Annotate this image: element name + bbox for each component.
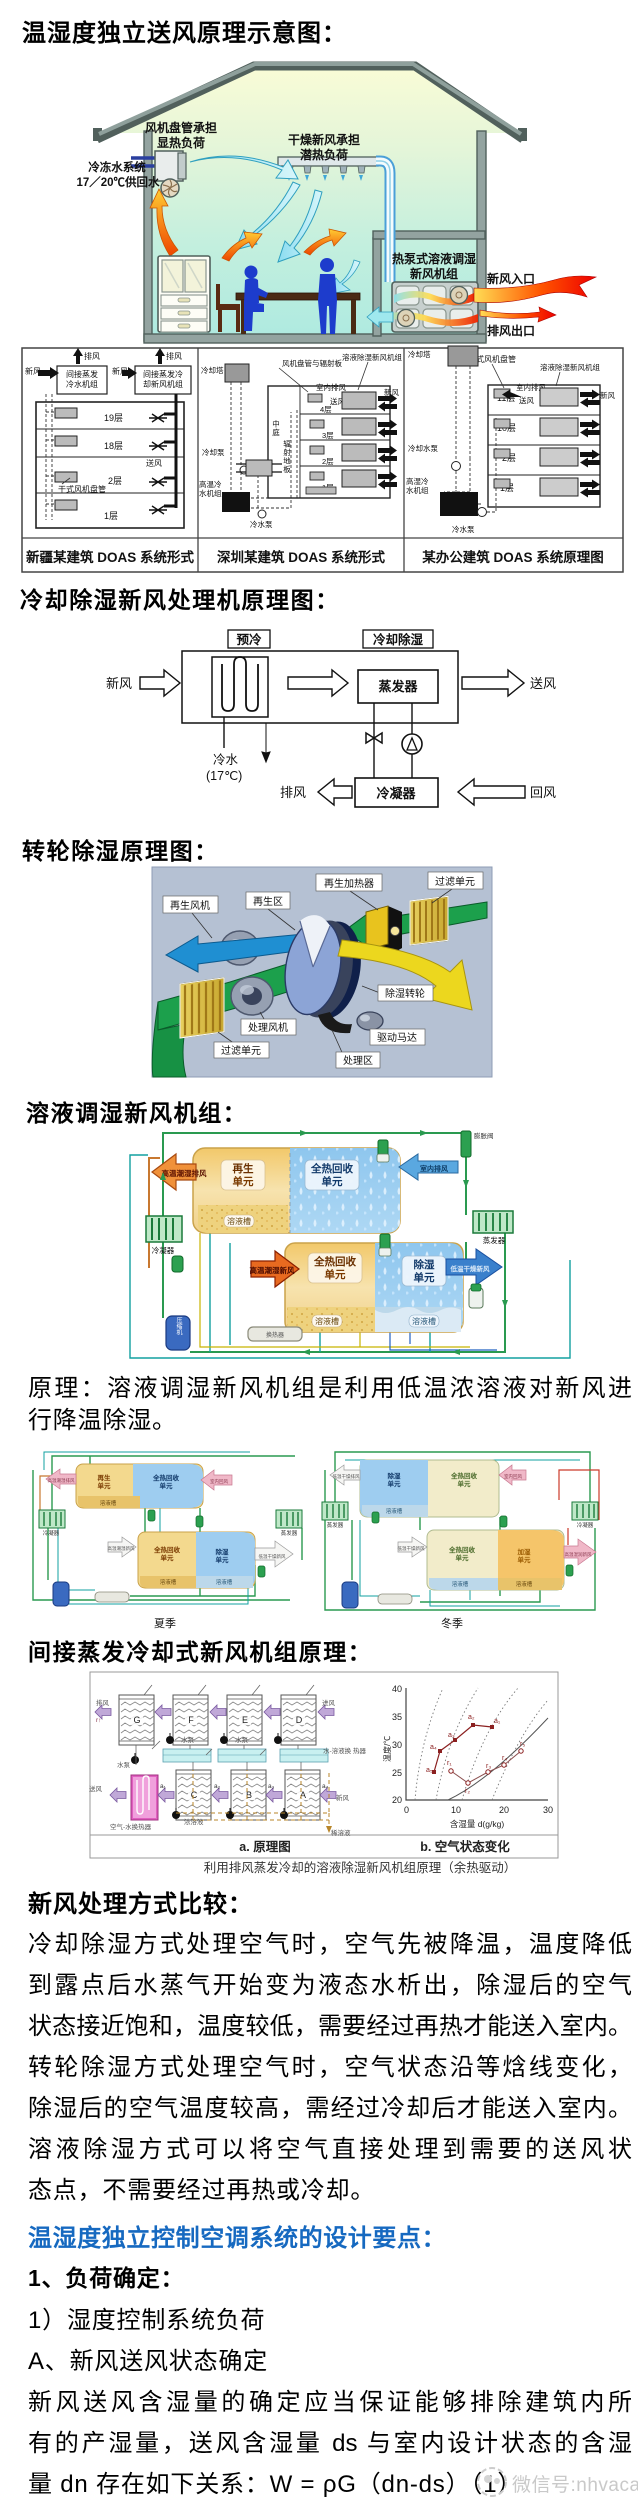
svg-text:冷水: 冷水 [213, 753, 239, 767]
svg-text:C: C [191, 1790, 198, 1800]
svg-text:单元: 单元 [414, 1271, 435, 1284]
svg-text:溶液槽: 溶液槽 [516, 1580, 533, 1588]
svg-text:10: 10 [451, 1805, 461, 1815]
svg-text:新风入口: 新风入口 [487, 271, 535, 286]
svg-text:高温潮湿新风: 高温潮湿新风 [250, 1265, 295, 1275]
svg-text:冷凝器: 冷凝器 [577, 1521, 594, 1529]
svg-text:a₃: a₃ [448, 1732, 455, 1739]
svg-text:进风: 进风 [322, 1699, 336, 1707]
svg-text:r₅: r₅ [520, 1741, 525, 1748]
svg-text:冷却塔: 冷却塔 [408, 349, 431, 359]
svg-text:水泵: 水泵 [235, 1735, 249, 1744]
svg-text:夏季: 夏季 [154, 1617, 176, 1630]
svg-text:溶液除湿新风机组: 溶液除湿新风机组 [342, 352, 402, 362]
svg-text:溶液槽: 溶液槽 [386, 1507, 403, 1515]
svg-text:除湿: 除湿 [388, 1471, 402, 1480]
svg-text:新风: 新风 [600, 390, 615, 400]
svg-text:处理区: 处理区 [343, 1055, 373, 1067]
svg-text:却新风机组: 却新风机组 [143, 379, 183, 389]
svg-text:除湿: 除湿 [216, 1547, 230, 1556]
svg-text:35: 35 [392, 1712, 402, 1722]
svg-text:室内排风: 室内排风 [420, 1164, 448, 1173]
svg-text:冷水泵: 冷水泵 [452, 524, 475, 534]
svg-text:排风: 排风 [96, 1698, 110, 1707]
svg-text:溶液除湿新风机组: 溶液除湿新风机组 [540, 362, 600, 372]
svg-text:高温潮湿排风: 高温潮湿排风 [162, 1168, 207, 1178]
svg-text:室内排风: 室内排风 [316, 382, 346, 392]
svg-text:a₄: a₄ [322, 1783, 329, 1790]
svg-text:a₅: a₅ [426, 1767, 433, 1774]
svg-text:全热回收: 全热回收 [313, 1255, 356, 1268]
svg-text:浓溶液: 浓溶液 [184, 1817, 204, 1826]
svg-text:室内回风: 室内回风 [210, 1478, 228, 1485]
svg-text:2层: 2层 [108, 476, 122, 486]
svg-text:空气-水换热器: 空气-水换热器 [110, 1822, 152, 1831]
svg-text:利用排风蒸发冷却的溶液除湿新风机组原理（余热驱动）: 利用排风蒸发冷却的溶液除湿新风机组原理（余热驱动） [204, 1860, 517, 1875]
svg-text:除湿: 除湿 [414, 1258, 435, 1271]
svg-text:r↑: r↑ [96, 1717, 101, 1724]
svg-text:热泵式溶液调湿: 热泵式溶液调湿 [392, 251, 476, 266]
svg-text:冷冻水系统: 冷冻水系统 [88, 160, 146, 174]
svg-text:回风: 回风 [530, 785, 556, 800]
svg-text:蒸发器: 蒸发器 [483, 1235, 506, 1245]
svg-text:新风: 新风 [106, 676, 132, 691]
svg-text:排风: 排风 [280, 785, 306, 800]
svg-text:冷却塔: 冷却塔 [201, 365, 224, 375]
svg-text:冷凝器: 冷凝器 [152, 1245, 175, 1255]
svg-text:19层: 19层 [104, 413, 123, 423]
svg-text:单元: 单元 [233, 1175, 254, 1188]
svg-text:送风: 送风 [519, 395, 534, 405]
svg-text:新风机组: 新风机组 [410, 266, 458, 281]
svg-text:单元: 单元 [518, 1555, 532, 1564]
svg-text:低温干燥新风: 低温干燥新风 [398, 1545, 425, 1552]
svg-text:含湿量 d(g/kg): 含湿量 d(g/kg) [450, 1819, 504, 1829]
svg-text:预冷: 预冷 [236, 632, 262, 647]
svg-text:溶液槽: 溶液槽 [315, 1316, 339, 1326]
svg-text:25: 25 [392, 1768, 402, 1778]
svg-text:F: F [188, 1715, 194, 1725]
svg-text:a. 原理图: a. 原理图 [239, 1840, 290, 1854]
svg-text:4层: 4层 [320, 405, 332, 414]
svg-text:20: 20 [392, 1795, 402, 1805]
svg-text:a₁: a₁ [494, 1718, 501, 1725]
svg-text:D: D [296, 1715, 303, 1725]
svg-text:2层: 2层 [322, 457, 334, 466]
svg-text:间接蒸发冷: 间接蒸发冷 [143, 369, 183, 379]
svg-text:溶液槽: 溶液槽 [100, 1499, 117, 1507]
svg-text:17／20℃供回水: 17／20℃供回水 [76, 175, 160, 189]
svg-text:r₃: r₃ [486, 1763, 491, 1770]
svg-text:20: 20 [499, 1805, 509, 1815]
svg-text:换热器: 换热器 [266, 1331, 284, 1339]
svg-text:全热回收: 全热回收 [152, 1473, 180, 1482]
svg-text:加湿: 加湿 [517, 1547, 532, 1556]
svg-text:b. 空气状态变化: b. 空气状态变化 [420, 1839, 510, 1854]
svg-text:中庭: 中庭 [271, 419, 280, 438]
svg-text:30: 30 [543, 1805, 553, 1815]
svg-text:潜热负荷: 潜热负荷 [300, 147, 348, 162]
svg-text:间接蒸发: 间接蒸发 [66, 369, 98, 379]
svg-text:高温潮湿排风: 高温潮湿排风 [48, 1477, 75, 1484]
svg-text:过滤单元: 过滤单元 [435, 875, 475, 888]
svg-text:水泵: 水泵 [117, 1760, 131, 1769]
svg-text:再生: 再生 [98, 1473, 112, 1482]
svg-text:a₂: a₂ [468, 1714, 475, 1721]
svg-text:单元: 单元 [160, 1481, 174, 1490]
svg-text:高湿冷: 高湿冷 [406, 476, 429, 486]
svg-text:稀溶液: 稀溶液 [331, 1828, 351, 1837]
svg-text:新风: 新风 [336, 1793, 350, 1802]
svg-text:干燥新风承担: 干燥新风承担 [288, 132, 360, 147]
svg-text:压缩机: 压缩机 [175, 1317, 182, 1336]
svg-text:蒸发器: 蒸发器 [378, 679, 418, 694]
svg-text:蒸发器: 蒸发器 [327, 1521, 344, 1529]
svg-text:水机组: 水机组 [199, 488, 222, 498]
svg-text:单元: 单元 [98, 1481, 112, 1490]
svg-text:单元: 单元 [388, 1479, 402, 1488]
svg-text:溶液槽: 溶液槽 [227, 1216, 251, 1226]
svg-text:低温干燥新风: 低温干燥新风 [259, 1553, 286, 1560]
svg-text:蒸发器: 蒸发器 [281, 1529, 298, 1537]
svg-text:温度/℃: 温度/℃ [382, 1736, 392, 1762]
svg-text:再生区: 再生区 [253, 895, 283, 908]
svg-text:r₁: r₁ [447, 1760, 452, 1767]
svg-text:室内回风: 室内回风 [504, 1473, 522, 1480]
svg-text:全热回收: 全热回收 [450, 1471, 478, 1480]
svg-text:冷凝器: 冷凝器 [376, 786, 416, 801]
svg-text:溶液槽: 溶液槽 [452, 1580, 469, 1588]
svg-text:排风: 排风 [166, 351, 182, 361]
svg-text:膨胀阀: 膨胀阀 [474, 1131, 494, 1140]
svg-text:过滤单元: 过滤单元 [221, 1044, 261, 1057]
svg-text:a₁: a₁ [160, 1783, 167, 1790]
svg-text:全热回收: 全热回收 [448, 1545, 476, 1554]
svg-text:高温冷: 高温冷 [199, 479, 222, 489]
svg-text:风机盘管与辐射板: 风机盘管与辐射板 [282, 358, 342, 368]
svg-text:排风: 排风 [84, 351, 100, 361]
svg-text:显热负荷: 显热负荷 [157, 135, 205, 150]
svg-text:(17℃): (17℃) [206, 769, 242, 783]
svg-text:溶液槽: 溶液槽 [216, 1578, 233, 1586]
svg-text:单元: 单元 [458, 1479, 472, 1488]
svg-text:40: 40 [392, 1684, 402, 1694]
svg-text:E: E [242, 1715, 248, 1725]
svg-text:3层: 3层 [322, 431, 334, 440]
svg-text:再生: 再生 [233, 1162, 254, 1175]
svg-text:a₂: a₂ [214, 1783, 221, 1790]
svg-text:冷水泵: 冷水泵 [250, 519, 273, 529]
svg-text:再生风机: 再生风机 [170, 899, 210, 912]
svg-text:单元: 单元 [322, 1175, 343, 1188]
svg-text:0: 0 [404, 1805, 409, 1815]
svg-text:单元: 单元 [325, 1268, 346, 1281]
svg-text:全热回收: 全热回收 [310, 1162, 353, 1175]
svg-text:1层: 1层 [104, 511, 118, 521]
svg-text:驱动马达: 驱动马达 [377, 1032, 417, 1044]
svg-text:单元: 单元 [456, 1553, 470, 1562]
svg-text:除湿转轮: 除湿转轮 [385, 987, 425, 1000]
svg-text:某办公建筑 DOAS 系统原理图: 某办公建筑 DOAS 系统原理图 [422, 549, 604, 565]
svg-text:高温湿润新风: 高温湿润新风 [565, 1551, 592, 1558]
svg-text:送风: 送风 [530, 676, 556, 691]
svg-text:冷却泵: 冷却泵 [202, 447, 225, 457]
svg-text:送风: 送风 [146, 458, 162, 468]
svg-text:冷水机组: 冷水机组 [66, 379, 98, 389]
svg-text:冷却除湿: 冷却除湿 [373, 632, 424, 647]
svg-text:新疆某建筑 DOAS 系统形式: 新疆某建筑 DOAS 系统形式 [26, 549, 195, 565]
svg-text:a₄: a₄ [430, 1744, 437, 1751]
svg-text:水机组: 水机组 [406, 485, 429, 495]
svg-text:冷凝器: 冷凝器 [43, 1529, 60, 1537]
svg-text:排风出口: 排风出口 [487, 323, 535, 338]
svg-text:送风: 送风 [89, 1784, 103, 1793]
svg-text:r₄: r₄ [502, 1755, 507, 1762]
svg-text:单元: 单元 [216, 1555, 230, 1564]
svg-text:深圳某建筑 DOAS 系统形式: 深圳某建筑 DOAS 系统形式 [217, 549, 386, 565]
svg-text:r₂: r₂ [465, 1788, 470, 1795]
svg-text:G: G [133, 1715, 140, 1725]
svg-text:溶液槽: 溶液槽 [412, 1316, 436, 1326]
svg-text:辐射地板: 辐射地板 [282, 439, 291, 475]
svg-text:风机盘管承担: 风机盘管承担 [145, 120, 217, 135]
svg-text:高温潮湿新风: 高温潮湿新风 [108, 1545, 135, 1552]
svg-text:水-溶液换 热器: 水-溶液换 热器 [323, 1746, 366, 1755]
svg-text:水泵: 水泵 [181, 1735, 195, 1744]
svg-text:全热回收: 全热回收 [153, 1545, 181, 1554]
svg-text:18层: 18层 [104, 441, 123, 451]
svg-text:溶液槽: 溶液槽 [160, 1578, 177, 1586]
svg-text:再生加热器: 再生加热器 [324, 877, 374, 890]
svg-text:低温干燥新风: 低温干燥新风 [450, 1264, 491, 1273]
svg-text:冷却水泵: 冷却水泵 [408, 443, 438, 453]
svg-text:冬季: 冬季 [441, 1616, 463, 1630]
svg-text:单元: 单元 [161, 1553, 175, 1562]
svg-text:低温干燥排风: 低温干燥排风 [333, 1473, 360, 1480]
svg-text:a₃: a₃ [268, 1783, 275, 1790]
svg-text:处理风机: 处理风机 [248, 1021, 288, 1034]
svg-text:30: 30 [392, 1740, 402, 1750]
